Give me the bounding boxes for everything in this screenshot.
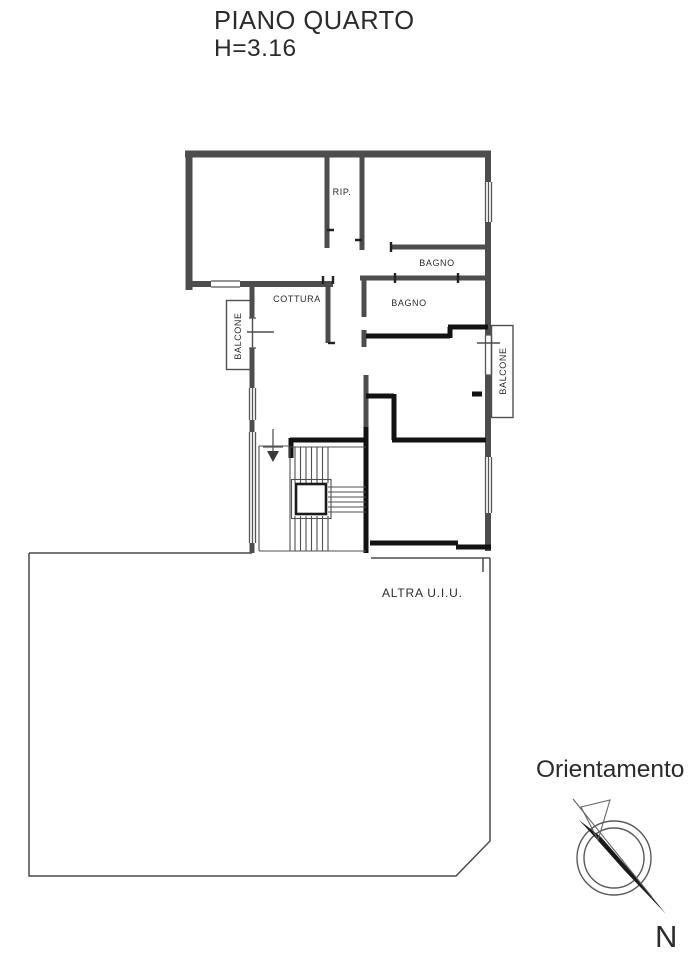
load-bearing-walls xyxy=(290,327,491,553)
label-cottura: COTTURA xyxy=(273,294,321,304)
plan-title-block: PIANO QUARTO H=3.16 xyxy=(214,7,415,62)
label-balcone-left: BALCONE xyxy=(233,312,243,359)
floor-plan-page: PIANO QUARTO H=3.16 xyxy=(0,0,694,958)
label-bagno-upper: BAGNO xyxy=(419,258,455,268)
wall-entry xyxy=(290,438,368,458)
floor-height: H=3.16 xyxy=(214,35,297,62)
apartment-walls xyxy=(185,151,491,553)
elevator-shaft xyxy=(296,484,326,514)
compass-rose-icon xyxy=(573,799,666,914)
adjacent-unit-outline xyxy=(29,553,490,876)
wall-corridor-right xyxy=(364,278,366,427)
north-label: N xyxy=(655,919,677,954)
label-bagno-lower: BAGNO xyxy=(391,298,427,308)
wall-bagno-lower-step xyxy=(448,327,488,338)
stair-treads-top xyxy=(295,447,328,483)
wall-bottom-right xyxy=(370,543,491,547)
label-balcone-right: BALCONE xyxy=(498,347,508,394)
adjacent-unit-boundary xyxy=(29,553,490,876)
label-rip: RIP. xyxy=(333,187,352,197)
adjacent-unit-separator xyxy=(371,558,490,572)
orientation-heading: Orientamento xyxy=(536,756,684,783)
window-right-upper xyxy=(486,182,492,222)
label-altra-uiu: ALTRA U.I.U. xyxy=(382,586,463,600)
window-right-lower xyxy=(486,457,492,513)
staircase xyxy=(259,429,366,551)
stair-treads-right xyxy=(328,487,366,512)
compass-needle xyxy=(579,820,666,914)
orientation-block: Orientamento N xyxy=(536,756,684,954)
stair-arrow-head xyxy=(267,451,279,462)
jamb-rip-door xyxy=(327,230,362,240)
window-left-long xyxy=(250,432,256,543)
window-room-bottom xyxy=(211,281,240,287)
stair-treads-bottom xyxy=(295,516,328,551)
floor-plan-drawing: PIANO QUARTO H=3.16 xyxy=(0,0,694,958)
wall-lower-room-top xyxy=(366,394,486,440)
window-left-mid xyxy=(250,388,256,420)
floor-title: PIANO QUARTO xyxy=(214,7,415,35)
